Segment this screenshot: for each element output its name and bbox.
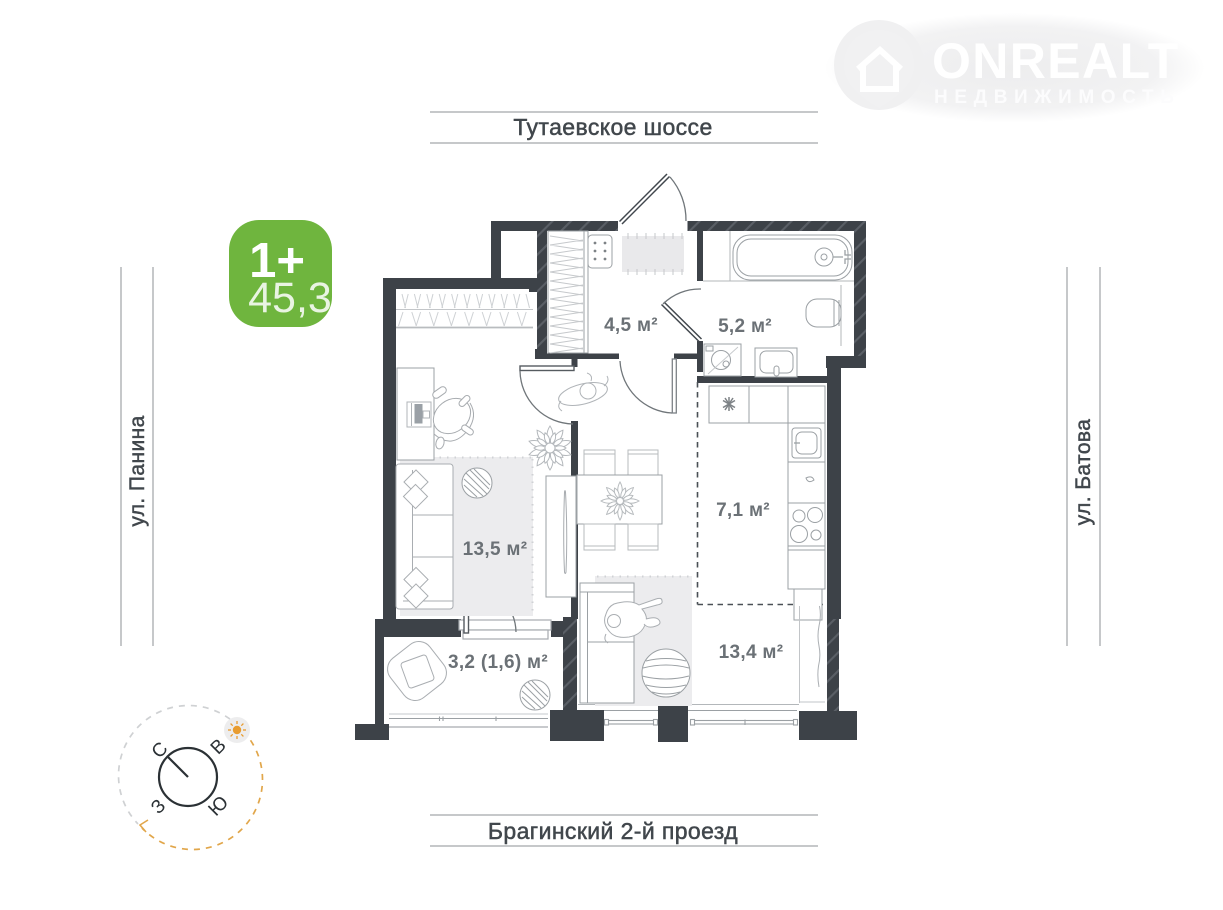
svg-text:ул. Панина: ул. Панина xyxy=(126,415,149,526)
svg-text:45,3: 45,3 xyxy=(248,274,332,322)
svg-text:НЕДВИЖИМОСТЬ: НЕДВИЖИМОСТЬ xyxy=(934,87,1180,108)
svg-text:5,2 м²: 5,2 м² xyxy=(718,316,772,337)
svg-text:7,1 м²: 7,1 м² xyxy=(716,500,770,521)
svg-text:Тутаевское шоссе: Тутаевское шоссе xyxy=(513,114,712,140)
svg-text:13,4 м²: 13,4 м² xyxy=(719,642,784,663)
svg-text:13,5 м²: 13,5 м² xyxy=(463,539,528,560)
svg-text:3,2 (1,6) м²: 3,2 (1,6) м² xyxy=(448,652,548,673)
svg-text:ул. Батова: ул. Батова xyxy=(1072,419,1095,526)
svg-text:ONREALT: ONREALT xyxy=(932,33,1180,89)
svg-text:Брагинский 2-й проезд: Брагинский 2-й проезд xyxy=(488,818,738,844)
svg-text:4,5 м²: 4,5 м² xyxy=(604,315,658,336)
